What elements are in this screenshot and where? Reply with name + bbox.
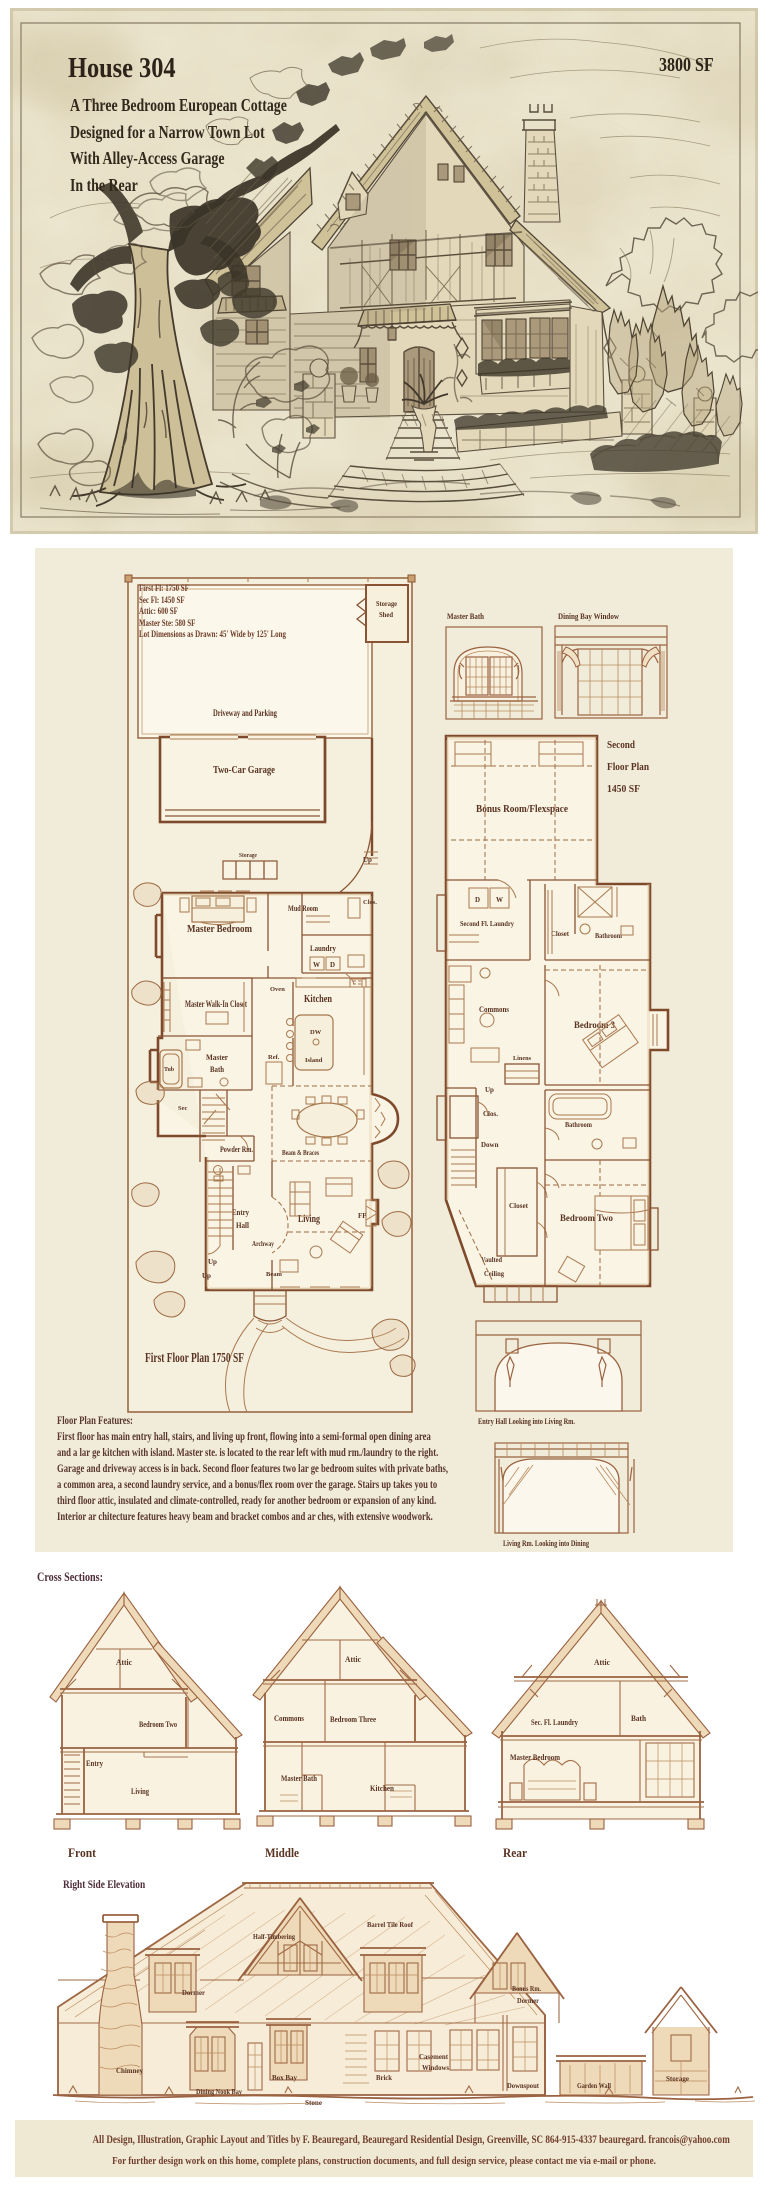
svg-text:Front: Front: [68, 1846, 97, 1860]
svg-text:Bonus Rm.: Bonus Rm.: [512, 1984, 541, 1993]
svg-text:Laundry: Laundry: [310, 944, 336, 953]
svg-text:Master Bath: Master Bath: [281, 1774, 317, 1783]
svg-text:Ceiling: Ceiling: [484, 1270, 504, 1278]
svg-text:Second Fl. Laundry: Second Fl. Laundry: [460, 919, 514, 928]
svg-text:D: D: [330, 961, 335, 969]
svg-text:Bedroom Two: Bedroom Two: [560, 1214, 613, 1224]
svg-text:Ref.: Ref.: [268, 1054, 280, 1061]
svg-text:Sec. Fl. Laundry: Sec. Fl. Laundry: [531, 1718, 578, 1727]
svg-text:Hall: Hall: [236, 1220, 250, 1230]
svg-text:Shed: Shed: [379, 610, 394, 619]
svg-text:Half-Timbering: Half-Timbering: [253, 1932, 295, 1941]
svg-text:Commons: Commons: [274, 1714, 304, 1723]
svg-text:Box Bay: Box Bay: [272, 2073, 297, 2082]
svg-text:Storage: Storage: [239, 852, 257, 859]
svg-text:Two-Car Garage: Two-Car Garage: [213, 764, 275, 776]
svg-text:Kitchen: Kitchen: [304, 994, 332, 1005]
svg-text:Bedroom Three: Bedroom Three: [330, 1715, 376, 1724]
svg-text:Windows: Windows: [422, 2063, 449, 2072]
svg-text:Master Bedroom: Master Bedroom: [510, 1753, 560, 1762]
svg-text:First Floor Plan 1750 SF: First Floor Plan 1750 SF: [145, 1350, 244, 1365]
svg-text:Casement: Casement: [419, 2052, 448, 2061]
svg-text:Linens: Linens: [513, 1055, 531, 1062]
svg-text:W: W: [313, 961, 320, 969]
svg-text:Master: Master: [206, 1052, 228, 1062]
svg-text:Entry Hall Looking into Living: Entry Hall Looking into Living Rm.: [478, 1416, 575, 1426]
svg-text:1450 SF: 1450 SF: [607, 783, 640, 795]
svg-text:Attic: Attic: [116, 1658, 132, 1667]
svg-text:Clos.: Clos.: [483, 1110, 498, 1118]
svg-text:Bath: Bath: [631, 1714, 646, 1723]
svg-text:Master Walk-In Closet: Master Walk-In Closet: [185, 999, 247, 1009]
svg-text:Entry: Entry: [86, 1759, 103, 1768]
svg-text:Rear: Rear: [503, 1846, 527, 1860]
svg-text:Beam & Braces: Beam & Braces: [282, 1149, 319, 1157]
svg-text:Stone: Stone: [305, 2098, 323, 2107]
svg-text:Bathroom: Bathroom: [595, 932, 622, 940]
svg-text:Attic: Attic: [594, 1658, 610, 1667]
svg-text:Living: Living: [298, 1213, 320, 1225]
svg-text:Sec: Sec: [178, 1105, 188, 1112]
svg-text:Master Bath: Master Bath: [447, 611, 484, 621]
svg-text:Chimney: Chimney: [116, 2066, 143, 2075]
svg-text:Tub: Tub: [164, 1067, 175, 1073]
svg-text:Up: Up: [363, 856, 372, 864]
svg-text:Dormer: Dormer: [182, 1988, 206, 1997]
svg-text:Archway: Archway: [252, 1240, 274, 1248]
svg-text:Closet: Closet: [509, 1202, 529, 1210]
svg-text:Garden Wall: Garden Wall: [577, 2081, 611, 2090]
svg-text:Dining Bay Window: Dining Bay Window: [558, 611, 620, 621]
svg-text:Floor Plan: Floor Plan: [607, 761, 649, 773]
svg-text:Up: Up: [485, 1086, 494, 1094]
svg-text:Storage: Storage: [666, 2074, 690, 2083]
svg-text:Dining Nook Bay: Dining Nook Bay: [196, 2087, 242, 2096]
svg-text:Brick: Brick: [376, 2073, 393, 2082]
svg-text:Driveway and Parking: Driveway and Parking: [213, 708, 277, 718]
svg-text:Bathroom: Bathroom: [565, 1121, 592, 1129]
svg-text:Dormer: Dormer: [517, 1996, 540, 2005]
svg-text:Oven: Oven: [270, 986, 285, 993]
svg-text:D: D: [475, 896, 480, 904]
svg-text:Up: Up: [208, 1258, 217, 1266]
svg-text:Commons: Commons: [479, 1004, 510, 1014]
svg-text:Kitchen: Kitchen: [370, 1784, 394, 1793]
svg-text:Entry: Entry: [232, 1207, 250, 1217]
svg-text:Attic: Attic: [345, 1655, 361, 1664]
svg-text:Clos.: Clos.: [363, 899, 377, 906]
svg-text:Living Rm. Looking into Dining: Living Rm. Looking into Dining: [503, 1538, 590, 1548]
svg-text:Down: Down: [481, 1141, 499, 1149]
svg-text:Second: Second: [607, 739, 635, 751]
svg-text:Mud Room: Mud Room: [288, 904, 318, 913]
svg-text:Up: Up: [202, 1272, 211, 1280]
svg-text:Living: Living: [131, 1787, 149, 1796]
svg-text:Storage: Storage: [376, 599, 398, 608]
svg-text:Middle: Middle: [265, 1846, 299, 1860]
svg-text:Bath: Bath: [210, 1064, 224, 1074]
svg-text:Barrel Tile Roof: Barrel Tile Roof: [367, 1920, 413, 1929]
svg-text:DW: DW: [310, 1029, 322, 1036]
svg-text:W: W: [496, 896, 503, 904]
svg-text:Bedroom Two: Bedroom Two: [139, 1720, 177, 1729]
svg-text:Downspout: Downspout: [507, 2081, 539, 2090]
svg-text:Island: Island: [305, 1057, 323, 1064]
svg-text:Master Bedroom: Master Bedroom: [187, 924, 252, 935]
svg-text:Closet: Closet: [551, 930, 570, 938]
svg-text:Bedroom 3: Bedroom 3: [574, 1021, 615, 1031]
